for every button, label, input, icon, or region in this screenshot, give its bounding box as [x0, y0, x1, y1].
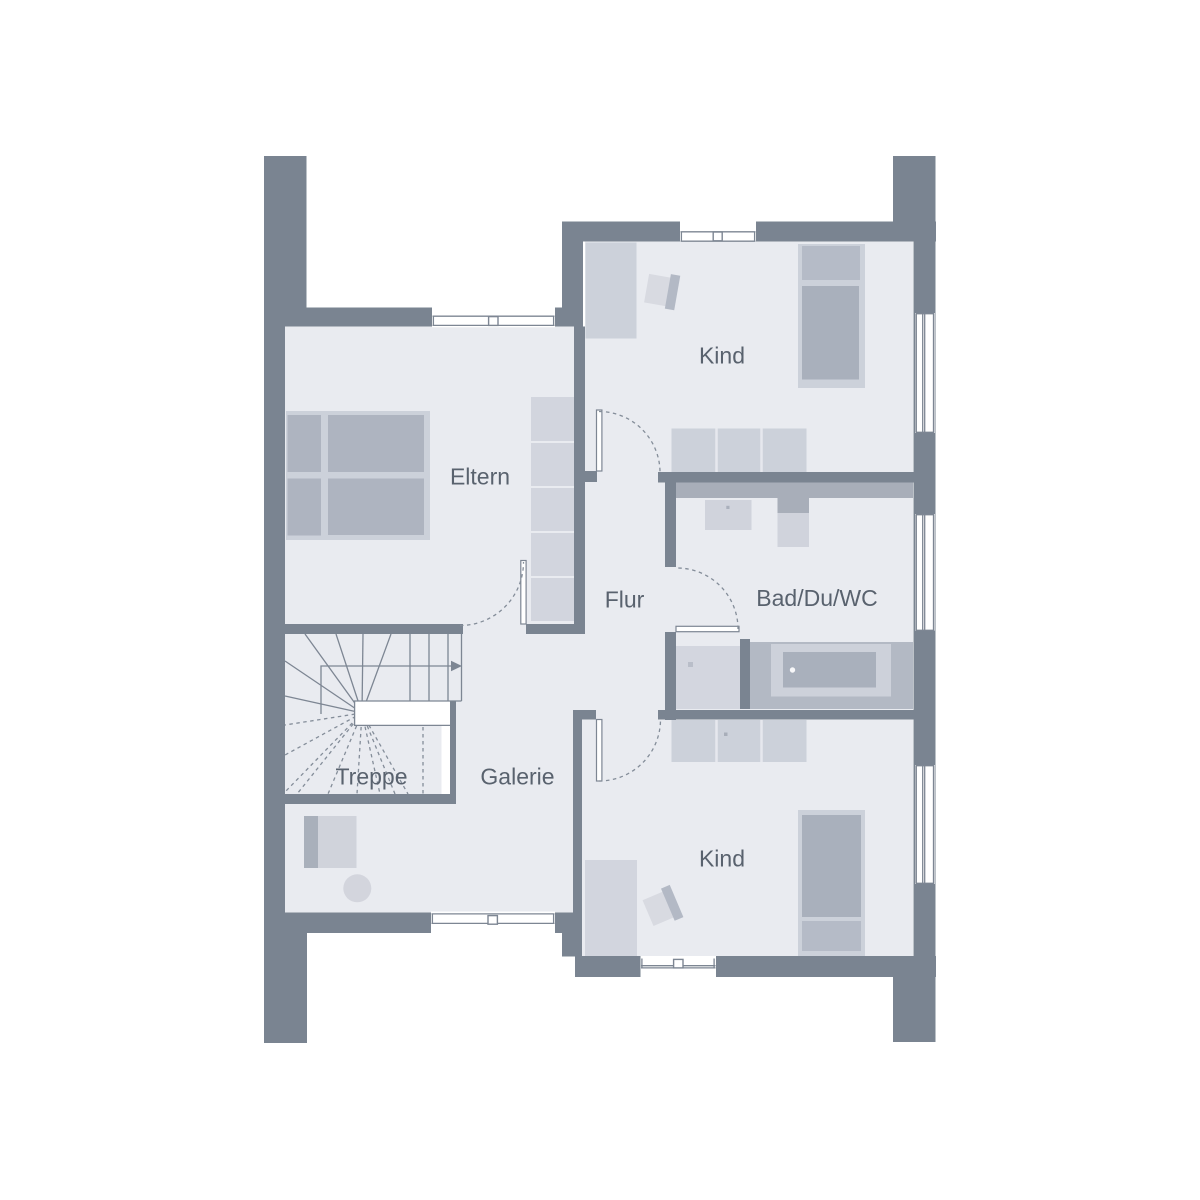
- svg-text:Flur: Flur: [605, 586, 645, 612]
- svg-text:Kind: Kind: [699, 343, 745, 369]
- svg-text:Treppe: Treppe: [335, 764, 407, 790]
- svg-text:Kind: Kind: [699, 846, 745, 872]
- svg-text:Bad/Du/WC: Bad/Du/WC: [756, 585, 877, 611]
- svg-text:Eltern: Eltern: [450, 463, 510, 489]
- svg-text:Galerie: Galerie: [480, 763, 554, 789]
